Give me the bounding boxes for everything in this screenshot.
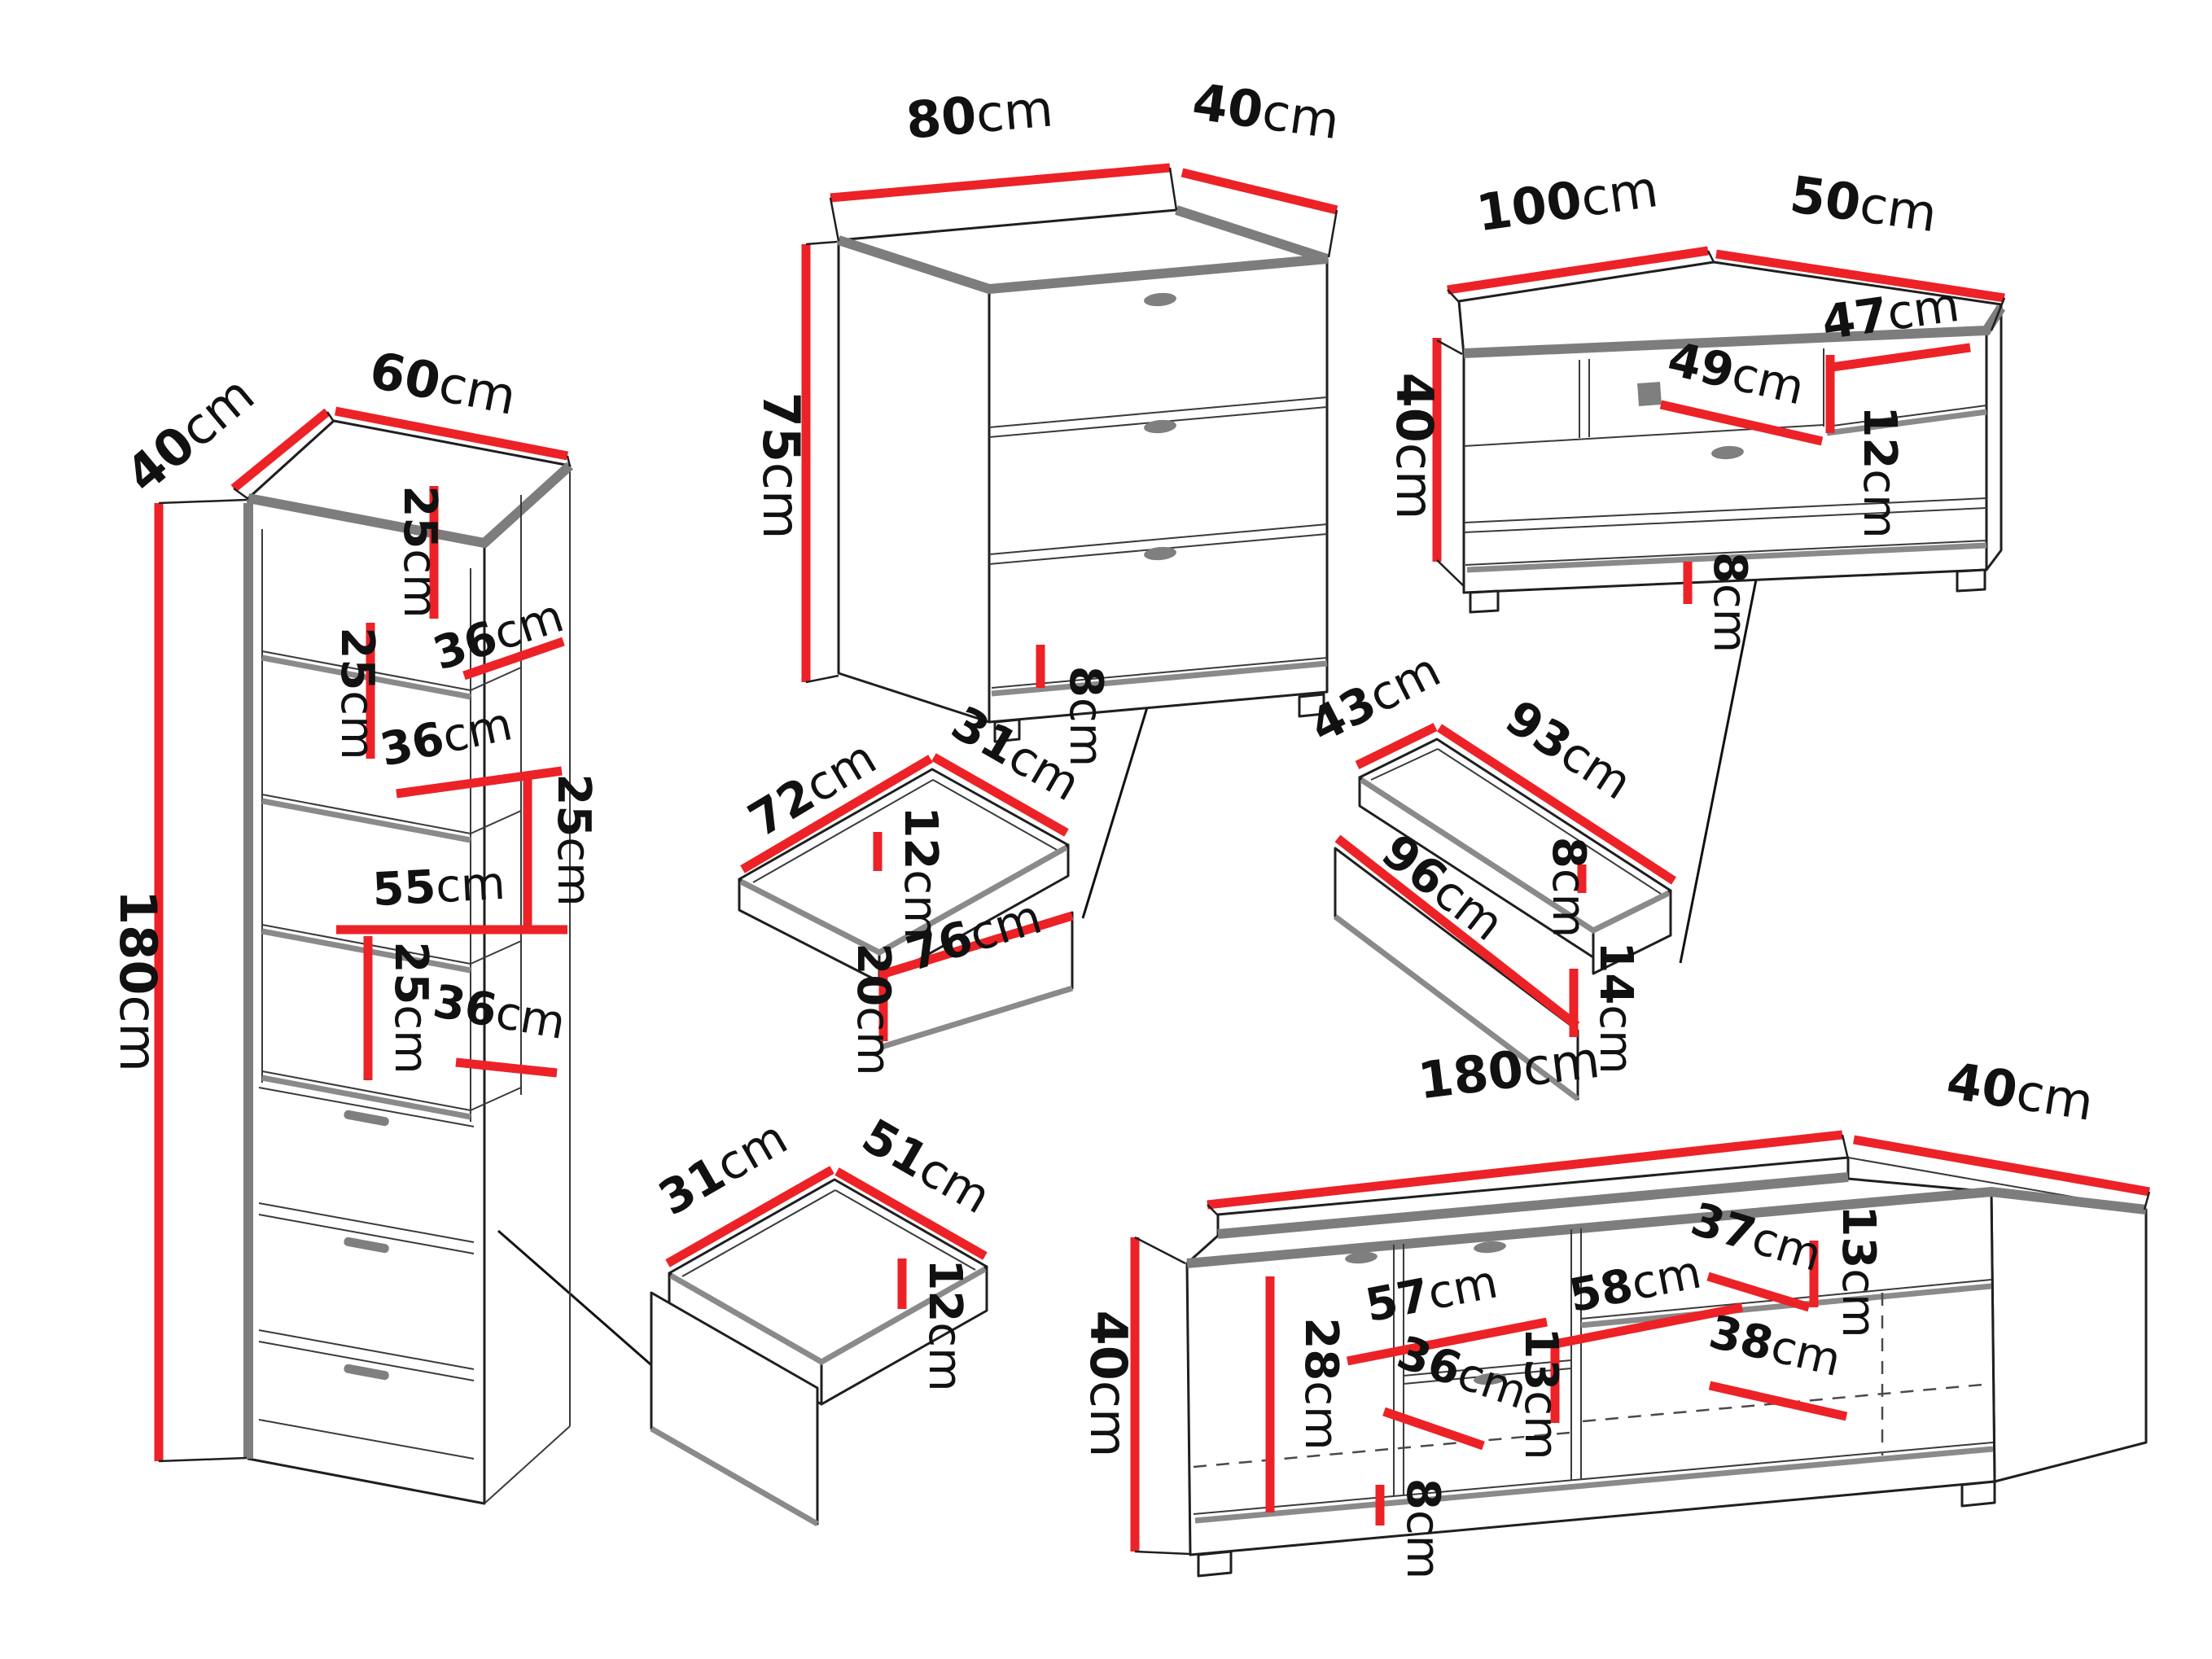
dim-bookcase-compartment3: 25cm bbox=[547, 773, 600, 906]
dim-value: 80 bbox=[904, 85, 979, 151]
dim-cabinet-plinth: 8cm bbox=[1703, 552, 1756, 653]
bookcase: 40cm 60cm 180cm 25cm 36cm 25cm 36cm 25cm… bbox=[108, 340, 600, 1504]
dim-value: 8 bbox=[1542, 837, 1595, 869]
chest-drawer-box: 72cm 31cm 12cm 76cm 20cm bbox=[739, 695, 1090, 1076]
dim-cabinet-depth: 50cm bbox=[1786, 164, 1940, 243]
dim-value: 40 bbox=[1385, 373, 1444, 443]
dim-value: 13 bbox=[1514, 1327, 1567, 1390]
dim-bookcase-height: 180cm bbox=[108, 890, 168, 1072]
dim-unit: cm bbox=[108, 995, 168, 1071]
dim-unit: cm bbox=[384, 1005, 437, 1074]
cabinet-foot-right bbox=[1957, 570, 1985, 591]
dim-unit: cm bbox=[1577, 159, 1662, 228]
dim-value: 28 bbox=[1294, 1317, 1347, 1381]
dim-unit: cm bbox=[435, 857, 507, 913]
dim-value: 40 bbox=[1079, 1311, 1138, 1381]
dim-unit: cm bbox=[1884, 277, 1963, 342]
dim-unit: cm bbox=[492, 986, 569, 1050]
dim-cabinet-width: 100cm bbox=[1473, 159, 1662, 243]
dim-value: 20 bbox=[847, 943, 900, 1006]
dim-value: 180 bbox=[108, 890, 168, 995]
dim-value: 25 bbox=[393, 485, 446, 549]
dim-value: 55 bbox=[371, 860, 437, 917]
dim-value: 180 bbox=[1415, 1039, 1526, 1110]
dim-value: 25 bbox=[331, 627, 383, 690]
dim-bookcase-width: 60cm bbox=[365, 340, 520, 427]
dim-stand-midh: 13cm bbox=[1514, 1327, 1567, 1460]
dim-unit: cm bbox=[1853, 469, 1906, 538]
dim-cabinet-height: 40cm bbox=[1385, 373, 1444, 520]
dim-value: 14 bbox=[1589, 941, 1642, 1005]
dim-unit: cm bbox=[1856, 174, 1941, 243]
dim-bookcase-compartment2: 25cm bbox=[331, 627, 383, 759]
bookcase-drawer-box: 31cm 51cm 12cm bbox=[650, 1108, 1000, 1524]
dim-unit: cm bbox=[1519, 1030, 1603, 1098]
diagram-canvas: 40cm 60cm 180cm 25cm 36cm 25cm 36cm 25cm… bbox=[0, 0, 2212, 1659]
dim-unit: cm bbox=[2013, 1061, 2098, 1132]
dim-unit: cm bbox=[751, 462, 811, 539]
dim-value: 8 bbox=[1396, 1478, 1449, 1510]
chest-of-drawers: 80cm 40cm 75cm 8cm bbox=[751, 72, 1343, 767]
dim-bookcase-compartment4: 25cm bbox=[384, 941, 437, 1074]
stand-foot-right bbox=[1962, 1482, 1995, 1506]
furniture-dimensions-diagram: 40cm 60cm 180cm 25cm 36cm 25cm 36cm 25cm… bbox=[0, 0, 2212, 1659]
dim-chest-width: 80cm bbox=[904, 78, 1055, 150]
dim-value: 12 bbox=[1853, 405, 1906, 469]
leader-bookcase-to-drawer bbox=[498, 1231, 664, 1376]
tv-cabinet-drawer-box: 43cm 93cm 96cm 8cm 14cm bbox=[1301, 641, 1674, 1099]
dim-unit: cm bbox=[1385, 443, 1444, 519]
dim-unit: cm bbox=[1396, 1510, 1449, 1579]
dim-unit: cm bbox=[1294, 1381, 1347, 1450]
tv-cabinet: 100cm 50cm 40cm 47cm 49cm 12cm 8cm bbox=[1385, 159, 2004, 653]
dim-drawerA-fronth: 20cm bbox=[847, 943, 900, 1075]
dim-unit: cm bbox=[1514, 1390, 1567, 1460]
dim-value: 13 bbox=[1832, 1205, 1885, 1268]
dim-unit: cm bbox=[974, 78, 1055, 144]
dim-value: 8 bbox=[1703, 552, 1756, 584]
dim-chest-depth: 40cm bbox=[1189, 72, 1343, 151]
dim-stand-height: 40cm bbox=[1079, 1311, 1138, 1458]
chest-dim-depth-line bbox=[1182, 173, 1337, 210]
dim-unit: cm bbox=[1832, 1268, 1885, 1337]
stand-foot-left bbox=[1198, 1552, 1231, 1576]
chest-dim-width-line bbox=[830, 168, 1170, 198]
dim-value: 8 bbox=[1059, 666, 1112, 698]
dim-bookcase-compartment1: 25cm bbox=[393, 485, 446, 618]
cabinet-square-handle bbox=[1637, 382, 1662, 406]
dim-value: 25 bbox=[547, 773, 600, 837]
dim-unit: cm bbox=[1079, 1381, 1138, 1457]
dim-value: 75 bbox=[751, 392, 811, 462]
dim-value: 12 bbox=[918, 1258, 971, 1322]
dim-drawerC-innerh: 12cm bbox=[918, 1258, 971, 1391]
dim-unit: cm bbox=[434, 353, 521, 427]
dim-drawerB-backh: 8cm bbox=[1542, 837, 1595, 938]
dim-stand-innerh: 28cm bbox=[1294, 1317, 1347, 1450]
dim-value: 36 bbox=[429, 975, 501, 1039]
dim-value: 50 bbox=[1786, 164, 1864, 233]
dim-value: 60 bbox=[365, 340, 445, 412]
dim-cabinet-nicheh: 12cm bbox=[1853, 405, 1906, 538]
dim-unit: cm bbox=[1259, 81, 1343, 151]
dim-value: 40 bbox=[1189, 72, 1267, 140]
dim-unit: cm bbox=[393, 549, 446, 618]
dim-unit: cm bbox=[547, 837, 600, 906]
dim-unit: cm bbox=[488, 589, 570, 661]
dim-stand-plinth: 8cm bbox=[1396, 1478, 1449, 1579]
dim-value: 47 bbox=[1819, 287, 1891, 351]
dim-value: 100 bbox=[1473, 169, 1585, 243]
dim-value: 12 bbox=[894, 806, 947, 869]
dim-stand-righth: 13cm bbox=[1832, 1205, 1885, 1337]
dim-unit: cm bbox=[1703, 584, 1756, 653]
dim-unit: cm bbox=[1542, 869, 1595, 938]
cabinet-foot-left bbox=[1470, 591, 1498, 612]
chest-side-face bbox=[839, 240, 989, 722]
stand-right-side bbox=[1991, 1192, 2146, 1482]
dim-value: 25 bbox=[384, 941, 437, 1005]
cabinet-right-side bbox=[1986, 306, 2001, 570]
dim-unit: cm bbox=[847, 1006, 900, 1075]
dim-value: 40 bbox=[1943, 1051, 2021, 1121]
tv-stand: 180cm 40cm 40cm 28cm 57cm 58cm 37cm 13cm… bbox=[1079, 1030, 2149, 1579]
dim-drawerC-depth: 31cm bbox=[650, 1110, 796, 1226]
dim-unit: cm bbox=[918, 1322, 971, 1391]
dim-chest-height: 75cm bbox=[751, 392, 811, 540]
dim-stand-depth: 40cm bbox=[1943, 1051, 2097, 1132]
dim-bookcase-shelf3: 55cm bbox=[371, 857, 506, 917]
